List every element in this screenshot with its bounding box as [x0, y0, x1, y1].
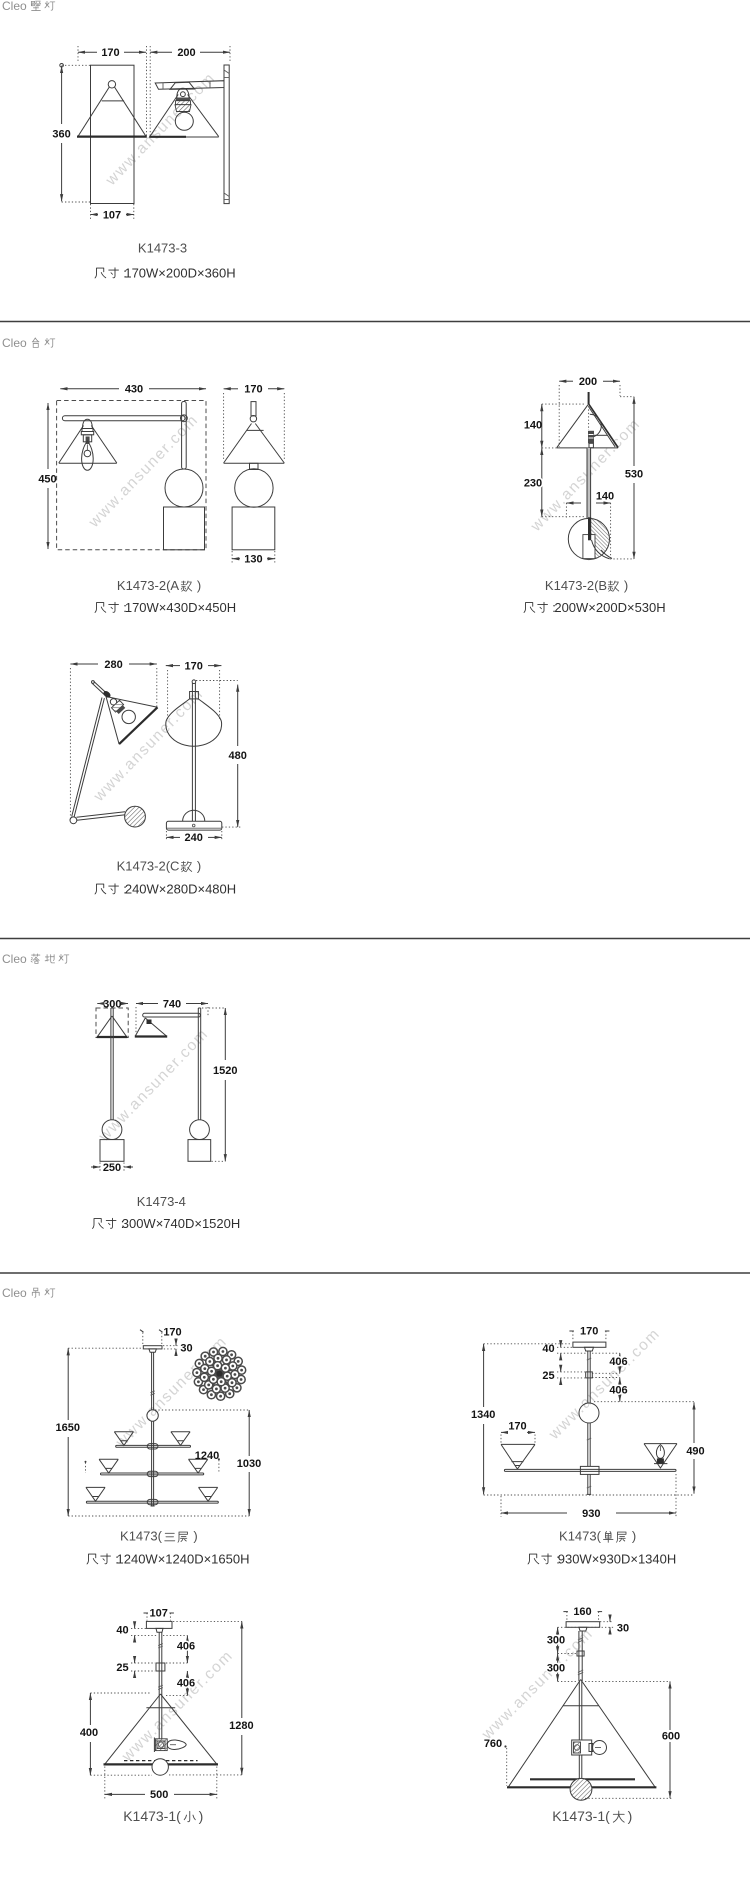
- svg-text:K1473-2(C: K1473-2(C: [117, 859, 180, 874]
- svg-text:): ): [197, 859, 201, 874]
- svg-text:1030: 1030: [237, 1458, 261, 1470]
- svg-text:406: 406: [609, 1385, 627, 1397]
- svg-text:25: 25: [542, 1370, 554, 1382]
- svg-text:300: 300: [547, 1635, 565, 1647]
- svg-text:K1473-4: K1473-4: [137, 1194, 186, 1209]
- svg-text:200: 200: [177, 47, 195, 59]
- svg-text:1520: 1520: [213, 1065, 237, 1077]
- svg-text:530: 530: [625, 469, 643, 481]
- svg-text:): ): [199, 1808, 204, 1824]
- svg-text:30: 30: [617, 1622, 629, 1634]
- svg-text:200: 200: [579, 376, 597, 388]
- svg-text:K1473-3: K1473-3: [138, 241, 187, 256]
- svg-text:600: 600: [662, 1731, 680, 1743]
- svg-text:170: 170: [508, 1421, 526, 1433]
- svg-text:170: 170: [185, 660, 203, 672]
- svg-text:360: 360: [52, 129, 70, 141]
- svg-text:Cleo: Cleo: [2, 952, 27, 966]
- svg-text:450: 450: [38, 474, 56, 486]
- svg-text:406: 406: [177, 1641, 195, 1653]
- svg-text:K1473-1(: K1473-1(: [552, 1808, 610, 1824]
- svg-text:500: 500: [150, 1789, 168, 1801]
- svg-text:930W×930D×1340H: 930W×930D×1340H: [558, 1552, 677, 1567]
- svg-text:40: 40: [116, 1625, 128, 1637]
- svg-text:40: 40: [542, 1343, 554, 1355]
- svg-text:430: 430: [125, 384, 143, 396]
- svg-text:): ): [197, 578, 201, 593]
- svg-text:740: 740: [163, 998, 181, 1010]
- svg-text:490: 490: [686, 1446, 704, 1458]
- svg-text:480: 480: [229, 750, 247, 762]
- svg-text:280: 280: [104, 659, 122, 671]
- svg-text:240: 240: [185, 832, 203, 844]
- svg-text:K1473-2(B: K1473-2(B: [545, 578, 607, 593]
- svg-text:200W×200D×530H: 200W×200D×530H: [554, 600, 665, 615]
- svg-text:1240W×1240D×1650H: 1240W×1240D×1650H: [117, 1552, 250, 1567]
- svg-text:406: 406: [177, 1678, 195, 1690]
- svg-text:400: 400: [80, 1727, 98, 1739]
- svg-text:107: 107: [150, 1608, 168, 1620]
- svg-text:230: 230: [524, 478, 542, 490]
- svg-text:K1473(: K1473(: [120, 1529, 163, 1544]
- svg-text:250: 250: [103, 1162, 121, 1174]
- svg-text:): ): [624, 578, 628, 593]
- svg-text:1280: 1280: [229, 1720, 253, 1732]
- svg-text:240W×280D×480H: 240W×280D×480H: [125, 882, 236, 897]
- svg-text:760: 760: [484, 1738, 502, 1750]
- svg-text:170: 170: [101, 47, 119, 59]
- svg-text:25: 25: [116, 1662, 128, 1674]
- svg-text:170: 170: [580, 1326, 598, 1338]
- svg-text:170W×200D×360H: 170W×200D×360H: [124, 266, 235, 281]
- svg-text:300W×740D×1520H: 300W×740D×1520H: [122, 1216, 241, 1231]
- svg-text:170: 170: [244, 384, 262, 396]
- svg-text:): ): [632, 1529, 636, 1544]
- svg-text:): ): [193, 1529, 197, 1544]
- svg-text:300: 300: [547, 1663, 565, 1675]
- svg-text:30: 30: [180, 1342, 192, 1354]
- svg-text:Cleo: Cleo: [2, 0, 27, 13]
- svg-text:140: 140: [596, 491, 614, 503]
- svg-text:170: 170: [163, 1327, 181, 1339]
- svg-text:Cleo: Cleo: [2, 336, 27, 350]
- svg-text:107: 107: [103, 209, 121, 221]
- svg-text:170W×430D×450H: 170W×430D×450H: [125, 600, 236, 615]
- svg-text:1650: 1650: [56, 1422, 80, 1434]
- svg-text:160: 160: [573, 1606, 591, 1618]
- svg-text:Cleo: Cleo: [2, 1286, 27, 1300]
- svg-text:): ): [628, 1808, 633, 1824]
- svg-text:930: 930: [582, 1508, 600, 1520]
- svg-text:1340: 1340: [471, 1409, 495, 1421]
- svg-text:130: 130: [244, 554, 262, 566]
- svg-text:K1473(: K1473(: [559, 1529, 602, 1544]
- svg-text:K1473-1(: K1473-1(: [123, 1808, 181, 1824]
- svg-text:406: 406: [609, 1356, 627, 1368]
- svg-text:140: 140: [524, 420, 542, 432]
- svg-text:1240: 1240: [195, 1450, 219, 1462]
- svg-text:K1473-2(A: K1473-2(A: [117, 578, 179, 593]
